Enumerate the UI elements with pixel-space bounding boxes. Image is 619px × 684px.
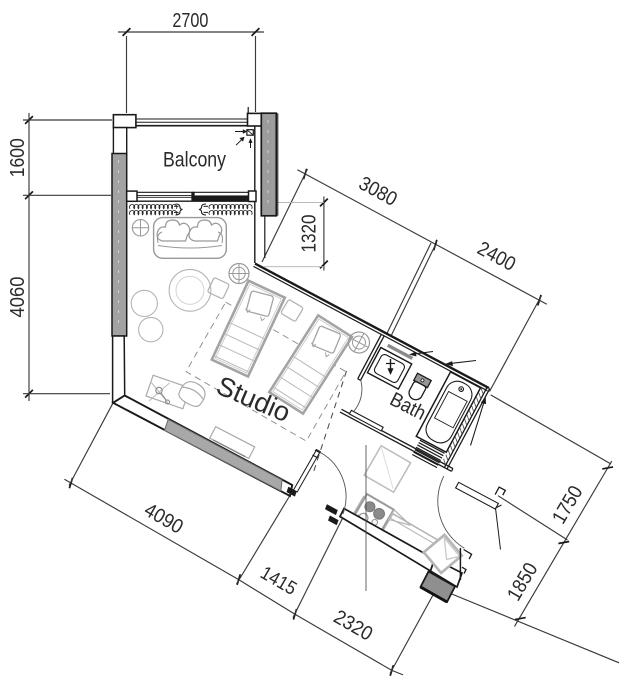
svg-text:4060: 4060 [7, 277, 29, 318]
svg-text:1320: 1320 [299, 215, 321, 253]
svg-text:1600: 1600 [7, 138, 29, 177]
svg-text:Balcony: Balcony [163, 149, 226, 172]
svg-text:2700: 2700 [172, 10, 208, 32]
